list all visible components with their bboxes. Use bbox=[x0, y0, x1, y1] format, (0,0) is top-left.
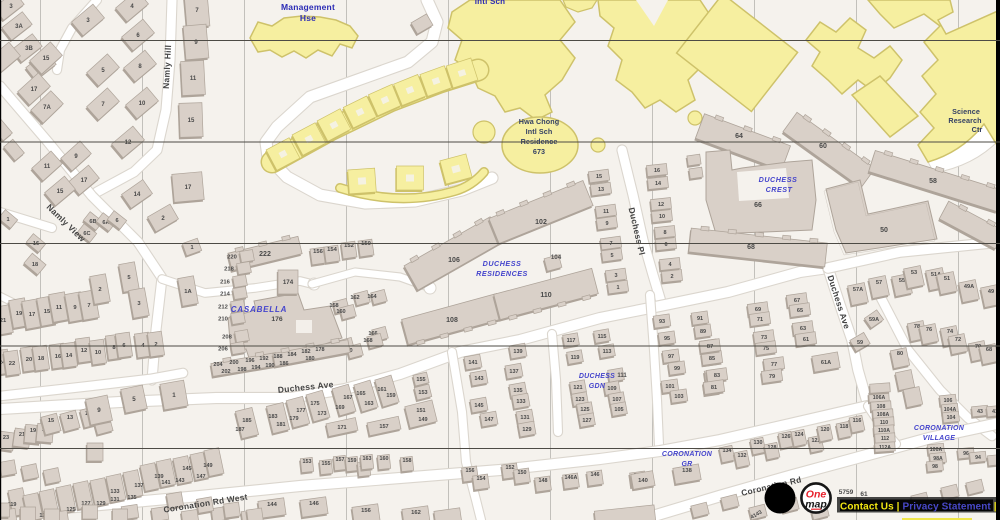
svg-text:178: 178 bbox=[315, 347, 324, 353]
svg-text:80: 80 bbox=[897, 351, 903, 357]
svg-text:66: 66 bbox=[754, 202, 762, 209]
svg-text:12: 12 bbox=[81, 348, 87, 354]
svg-text:145: 145 bbox=[182, 466, 191, 472]
svg-text:14: 14 bbox=[655, 181, 662, 187]
svg-text:202: 202 bbox=[221, 369, 230, 375]
svg-text:Intl Sch: Intl Sch bbox=[526, 127, 553, 136]
svg-text:5759: 5759 bbox=[839, 489, 854, 496]
svg-text:73: 73 bbox=[761, 335, 767, 341]
svg-text:Management: Management bbox=[281, 2, 335, 12]
svg-text:49: 49 bbox=[988, 289, 994, 295]
svg-text:200: 200 bbox=[229, 360, 238, 366]
svg-text:DUCHESS: DUCHESS bbox=[759, 175, 798, 184]
svg-text:7A: 7A bbox=[43, 105, 51, 111]
svg-text:133: 133 bbox=[516, 399, 525, 405]
svg-text:126: 126 bbox=[782, 434, 791, 440]
svg-text:75: 75 bbox=[763, 346, 769, 352]
svg-text:11: 11 bbox=[603, 209, 609, 215]
svg-text:220: 220 bbox=[227, 255, 237, 261]
svg-text:7: 7 bbox=[87, 303, 90, 309]
svg-text:3B: 3B bbox=[25, 46, 33, 52]
svg-text:50: 50 bbox=[880, 227, 888, 234]
svg-text:Research: Research bbox=[948, 116, 981, 125]
svg-text:169: 169 bbox=[335, 405, 344, 411]
svg-text:100A: 100A bbox=[930, 447, 943, 453]
svg-text:148: 148 bbox=[539, 478, 548, 484]
svg-text:152: 152 bbox=[506, 465, 515, 471]
svg-text:DUCHESS: DUCHESS bbox=[579, 373, 615, 380]
svg-text:150: 150 bbox=[518, 470, 527, 476]
svg-text:68: 68 bbox=[986, 347, 992, 353]
svg-text:91: 91 bbox=[697, 316, 703, 322]
svg-text:105: 105 bbox=[614, 407, 623, 413]
svg-text:123: 123 bbox=[575, 397, 584, 403]
svg-text:673: 673 bbox=[533, 147, 545, 156]
svg-text:212: 212 bbox=[218, 305, 228, 311]
svg-text:173: 173 bbox=[317, 411, 326, 417]
svg-text:162: 162 bbox=[350, 295, 359, 301]
svg-text:59A: 59A bbox=[869, 317, 879, 323]
svg-text:184: 184 bbox=[287, 352, 297, 358]
svg-text:72: 72 bbox=[955, 337, 961, 343]
svg-text:156: 156 bbox=[466, 468, 475, 474]
svg-text:147: 147 bbox=[196, 474, 205, 480]
svg-text:79: 79 bbox=[769, 374, 775, 380]
svg-text:167: 167 bbox=[343, 395, 352, 401]
svg-text:147: 147 bbox=[484, 417, 493, 423]
svg-text:155: 155 bbox=[322, 461, 331, 467]
svg-text:149: 149 bbox=[203, 463, 212, 469]
svg-text:158: 158 bbox=[403, 458, 412, 464]
svg-text:137: 137 bbox=[134, 483, 143, 489]
svg-text:87: 87 bbox=[707, 344, 713, 350]
svg-text:68: 68 bbox=[747, 244, 755, 251]
svg-text:218: 218 bbox=[224, 267, 234, 273]
svg-text:165: 165 bbox=[356, 391, 365, 397]
svg-text:182: 182 bbox=[301, 349, 310, 355]
svg-text:210: 210 bbox=[218, 317, 228, 323]
svg-text:106: 106 bbox=[944, 398, 953, 404]
svg-text:49A: 49A bbox=[964, 284, 974, 290]
svg-text:177: 177 bbox=[296, 408, 305, 414]
svg-text:10: 10 bbox=[139, 101, 146, 107]
svg-text:15: 15 bbox=[43, 56, 50, 62]
svg-text:135: 135 bbox=[513, 388, 522, 394]
svg-text:18: 18 bbox=[38, 356, 45, 362]
svg-text:77: 77 bbox=[771, 362, 777, 368]
svg-text:185: 185 bbox=[242, 418, 251, 424]
svg-text:156: 156 bbox=[313, 249, 323, 255]
svg-text:Ctr: Ctr bbox=[972, 125, 983, 134]
svg-text:53: 53 bbox=[911, 270, 917, 276]
svg-text:83: 83 bbox=[714, 373, 720, 379]
svg-text:11: 11 bbox=[56, 305, 63, 311]
svg-text:153: 153 bbox=[303, 459, 312, 465]
svg-text:89: 89 bbox=[700, 329, 706, 335]
svg-text:119: 119 bbox=[571, 355, 580, 361]
svg-text:188: 188 bbox=[273, 354, 282, 360]
svg-text:6: 6 bbox=[115, 218, 118, 224]
svg-text:146: 146 bbox=[591, 472, 600, 478]
svg-text:133: 133 bbox=[110, 489, 119, 495]
svg-text:183: 183 bbox=[268, 414, 277, 420]
svg-text:157: 157 bbox=[336, 457, 345, 463]
svg-text:171: 171 bbox=[337, 425, 346, 431]
svg-text:135: 135 bbox=[127, 495, 136, 501]
svg-text:110: 110 bbox=[540, 292, 551, 299]
svg-text:51: 51 bbox=[944, 276, 950, 282]
svg-text:103: 103 bbox=[674, 394, 683, 400]
svg-text:5: 5 bbox=[132, 396, 136, 403]
svg-text:104: 104 bbox=[947, 415, 956, 421]
svg-text:57A: 57A bbox=[853, 287, 863, 293]
svg-text:187: 187 bbox=[235, 427, 244, 433]
svg-text:96: 96 bbox=[963, 451, 969, 457]
svg-text:163: 163 bbox=[364, 401, 373, 407]
svg-text:5: 5 bbox=[610, 253, 613, 259]
svg-text:151: 151 bbox=[416, 408, 425, 414]
svg-text:140: 140 bbox=[638, 478, 648, 484]
svg-text:65: 65 bbox=[797, 308, 803, 314]
svg-text:11: 11 bbox=[44, 164, 51, 170]
svg-text:71: 71 bbox=[757, 317, 763, 323]
svg-text:149: 149 bbox=[418, 417, 427, 423]
svg-text:19: 19 bbox=[30, 428, 36, 434]
svg-text:58: 58 bbox=[929, 178, 937, 185]
svg-text:2: 2 bbox=[98, 287, 101, 293]
svg-text:109: 109 bbox=[607, 386, 616, 392]
svg-text:15: 15 bbox=[57, 189, 64, 195]
svg-text:101: 101 bbox=[665, 384, 674, 390]
svg-text:196: 196 bbox=[245, 358, 254, 364]
svg-text:160: 160 bbox=[380, 456, 389, 462]
svg-text:194: 194 bbox=[251, 365, 261, 371]
svg-text:1: 1 bbox=[616, 285, 619, 291]
svg-text:181: 181 bbox=[276, 422, 285, 428]
svg-text:1: 1 bbox=[190, 245, 193, 251]
svg-text:14: 14 bbox=[134, 192, 141, 198]
svg-text:CORONATION: CORONATION bbox=[662, 451, 713, 458]
svg-text:125: 125 bbox=[580, 407, 589, 413]
svg-text:107: 107 bbox=[612, 397, 621, 403]
svg-text:CORONATION: CORONATION bbox=[914, 425, 965, 432]
svg-text:15: 15 bbox=[48, 418, 54, 424]
svg-text:18: 18 bbox=[32, 262, 38, 268]
svg-text:155: 155 bbox=[416, 377, 425, 383]
svg-text:176: 176 bbox=[271, 316, 283, 323]
svg-text:137: 137 bbox=[509, 369, 518, 375]
svg-text:Contact Us | Privacy Statement: Contact Us | Privacy Statement | bbox=[840, 502, 997, 513]
svg-text:9: 9 bbox=[605, 221, 608, 227]
svg-text:17: 17 bbox=[31, 87, 38, 93]
svg-text:146: 146 bbox=[309, 501, 319, 507]
svg-text:57: 57 bbox=[876, 280, 882, 286]
svg-text:CASABELLA: CASABELLA bbox=[231, 305, 288, 314]
svg-text:160: 160 bbox=[336, 309, 345, 315]
svg-text:214: 214 bbox=[220, 292, 230, 298]
svg-text:156: 156 bbox=[361, 508, 371, 514]
svg-text:76: 76 bbox=[926, 327, 932, 333]
svg-text:22: 22 bbox=[9, 361, 15, 367]
svg-text:10: 10 bbox=[95, 350, 101, 356]
svg-text:192: 192 bbox=[259, 356, 268, 362]
svg-text:168: 168 bbox=[363, 338, 372, 344]
svg-text:175: 175 bbox=[310, 401, 319, 407]
svg-text:143: 143 bbox=[175, 478, 184, 484]
svg-text:206: 206 bbox=[218, 347, 228, 353]
svg-text:17: 17 bbox=[29, 312, 35, 318]
svg-text:116: 116 bbox=[853, 418, 862, 424]
svg-text:63: 63 bbox=[800, 326, 806, 332]
svg-text:208: 208 bbox=[222, 335, 232, 341]
svg-text:127: 127 bbox=[582, 418, 591, 424]
svg-text:12: 12 bbox=[658, 202, 664, 208]
svg-text:104: 104 bbox=[551, 254, 562, 261]
svg-text:198: 198 bbox=[237, 367, 246, 373]
svg-text:164: 164 bbox=[367, 294, 377, 300]
svg-text:163: 163 bbox=[363, 456, 372, 462]
svg-text:157: 157 bbox=[379, 424, 388, 430]
svg-text:59: 59 bbox=[857, 340, 863, 346]
svg-text:Intl Sch: Intl Sch bbox=[475, 0, 506, 6]
svg-text:GR: GR bbox=[681, 461, 692, 468]
svg-text:190: 190 bbox=[265, 363, 274, 369]
svg-text:106: 106 bbox=[448, 257, 460, 264]
svg-text:139: 139 bbox=[513, 349, 522, 355]
svg-text:141: 141 bbox=[468, 360, 477, 366]
svg-text:117: 117 bbox=[567, 338, 576, 344]
svg-text:132: 132 bbox=[738, 453, 747, 459]
svg-text:154: 154 bbox=[477, 476, 486, 482]
svg-text:153: 153 bbox=[418, 390, 427, 396]
svg-text:1: 1 bbox=[172, 392, 176, 399]
svg-text:74: 74 bbox=[947, 329, 954, 335]
svg-text:19: 19 bbox=[16, 311, 23, 317]
svg-text:Hse: Hse bbox=[300, 13, 316, 23]
svg-text:93: 93 bbox=[659, 319, 665, 325]
svg-text:13: 13 bbox=[598, 187, 604, 193]
svg-text:98: 98 bbox=[932, 464, 938, 470]
svg-text:20: 20 bbox=[26, 357, 32, 363]
svg-text:145: 145 bbox=[474, 403, 483, 409]
svg-text:2: 2 bbox=[670, 274, 673, 280]
svg-text:159: 159 bbox=[348, 458, 357, 464]
svg-text:6B: 6B bbox=[89, 219, 96, 225]
svg-text:3: 3 bbox=[614, 273, 617, 279]
svg-text:102: 102 bbox=[535, 219, 547, 226]
svg-text:6: 6 bbox=[664, 242, 667, 248]
svg-text:43: 43 bbox=[977, 409, 983, 415]
svg-text:23: 23 bbox=[3, 435, 9, 441]
svg-text:204: 204 bbox=[213, 362, 223, 368]
svg-text:17: 17 bbox=[185, 185, 192, 191]
svg-text:64: 64 bbox=[735, 133, 743, 140]
svg-text:16: 16 bbox=[654, 168, 660, 174]
svg-text:118: 118 bbox=[840, 424, 849, 430]
svg-text:115: 115 bbox=[598, 334, 607, 340]
svg-text:VILLAGE: VILLAGE bbox=[923, 435, 955, 442]
svg-text:138: 138 bbox=[682, 468, 692, 474]
svg-text:222: 222 bbox=[259, 251, 271, 258]
svg-text:DUCHESS: DUCHESS bbox=[483, 259, 522, 268]
svg-text:Hwa Chong: Hwa Chong bbox=[519, 117, 559, 126]
svg-text:146A: 146A bbox=[565, 475, 578, 481]
svg-text:1: 1 bbox=[6, 217, 9, 223]
svg-text:131: 131 bbox=[520, 415, 529, 421]
svg-text:13: 13 bbox=[67, 415, 73, 421]
svg-text:179: 179 bbox=[289, 416, 298, 422]
svg-text:99: 99 bbox=[674, 366, 680, 372]
svg-text:2: 2 bbox=[154, 342, 157, 348]
svg-text:RESIDENCES: RESIDENCES bbox=[476, 269, 528, 278]
svg-text:3A: 3A bbox=[15, 24, 23, 30]
svg-text:15: 15 bbox=[596, 174, 602, 180]
svg-text:1A: 1A bbox=[184, 289, 192, 295]
svg-text:11: 11 bbox=[190, 76, 197, 82]
svg-text:143: 143 bbox=[474, 376, 483, 382]
svg-text:60: 60 bbox=[819, 143, 827, 150]
svg-text:216: 216 bbox=[220, 280, 230, 286]
svg-text:121: 121 bbox=[573, 385, 582, 391]
svg-text:GDN: GDN bbox=[589, 383, 606, 390]
svg-text:108: 108 bbox=[446, 317, 458, 324]
svg-text:94: 94 bbox=[975, 455, 981, 461]
svg-text:174: 174 bbox=[283, 279, 294, 286]
svg-text:81: 81 bbox=[711, 385, 717, 391]
svg-text:106A: 106A bbox=[873, 395, 886, 401]
svg-text:124: 124 bbox=[795, 432, 804, 438]
svg-text:15: 15 bbox=[188, 118, 195, 124]
svg-text:9: 9 bbox=[97, 407, 101, 414]
svg-text:162: 162 bbox=[411, 510, 421, 516]
svg-text:111: 111 bbox=[617, 373, 627, 379]
svg-text:113: 113 bbox=[603, 349, 612, 355]
svg-text:161: 161 bbox=[377, 387, 386, 393]
svg-text:130: 130 bbox=[754, 440, 763, 446]
svg-text:Science: Science bbox=[952, 107, 980, 116]
svg-text:159: 159 bbox=[386, 393, 395, 399]
svg-text:95: 95 bbox=[664, 336, 670, 342]
svg-text:120: 120 bbox=[821, 427, 830, 433]
svg-text:67: 67 bbox=[794, 298, 800, 304]
svg-text:186: 186 bbox=[279, 361, 288, 367]
svg-text:144: 144 bbox=[267, 502, 277, 508]
svg-text:131: 131 bbox=[110, 497, 119, 503]
svg-text:97: 97 bbox=[668, 354, 674, 360]
svg-text:180: 180 bbox=[305, 356, 314, 362]
svg-text:141: 141 bbox=[161, 480, 170, 486]
svg-text:61: 61 bbox=[803, 337, 809, 343]
svg-text:69: 69 bbox=[755, 307, 761, 313]
svg-text:14: 14 bbox=[66, 353, 73, 359]
svg-text:10: 10 bbox=[659, 214, 665, 220]
svg-text:112: 112 bbox=[881, 436, 889, 442]
svg-text:17: 17 bbox=[81, 178, 88, 184]
svg-text:129: 129 bbox=[522, 427, 531, 433]
svg-text:61: 61 bbox=[860, 491, 868, 498]
svg-text:85: 85 bbox=[709, 356, 715, 362]
svg-text:8: 8 bbox=[663, 230, 666, 236]
svg-text:154: 154 bbox=[327, 247, 337, 253]
svg-text:CREST: CREST bbox=[766, 185, 793, 194]
svg-text:125: 125 bbox=[66, 507, 75, 513]
svg-text:12: 12 bbox=[125, 140, 132, 146]
svg-text:61A: 61A bbox=[821, 360, 831, 366]
